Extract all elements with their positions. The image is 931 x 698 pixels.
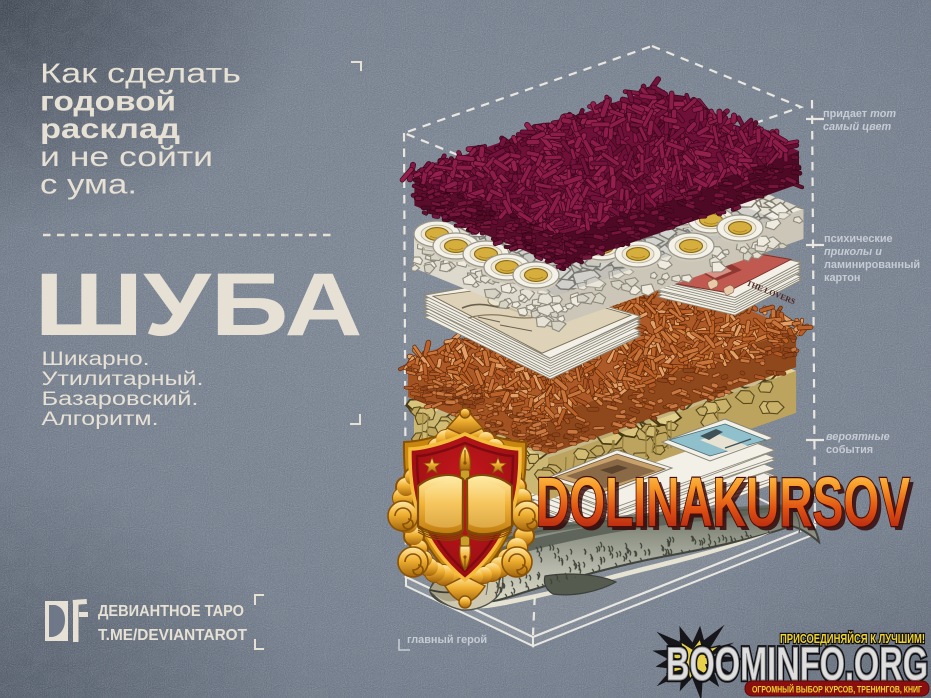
svg-text:расклад: расклад — [40, 113, 180, 144]
svg-text:Утилитарный.: Утилитарный. — [42, 369, 204, 390]
svg-text:с ума.: с ума. — [40, 169, 137, 200]
svg-text:ОГРОМНЫЙ ВЫБОР КУРСОВ, ТРЕНИНГ: ОГРОМНЫЙ ВЫБОР КУРСОВ, ТРЕНИНГОВ, КНИГ — [752, 684, 922, 696]
svg-text:психические: психические — [824, 233, 893, 245]
svg-text:главный герой: главный герой — [407, 634, 487, 646]
svg-text:события: события — [826, 444, 873, 456]
svg-text:ПРИСОЕДИНЯЙСЯ К ЛУЧШИМ!: ПРИСОЕДИНЯЙСЯ К ЛУЧШИМ! — [780, 631, 925, 646]
svg-text:самый цвет: самый цвет — [823, 121, 892, 133]
svg-text:ДЕВИАНТНОЕ ТАРО: ДЕВИАНТНОЕ ТАРО — [98, 603, 244, 620]
svg-text:Как сделать: Как сделать — [40, 58, 241, 89]
svg-text:Шикарно.: Шикарно. — [42, 349, 150, 370]
svg-text:приколы и: приколы и — [824, 246, 882, 258]
svg-text:вероятные: вероятные — [826, 431, 890, 443]
svg-text:DOLINAKURSOV: DOLINAKURSOV — [536, 463, 910, 541]
svg-text:ШУБА: ШУБА — [35, 254, 363, 354]
svg-text:придает тот: придает тот — [823, 108, 896, 120]
svg-text:ламинированный: ламинированный — [824, 259, 920, 271]
svg-text:и не сойти: и не сойти — [40, 141, 213, 172]
svg-text:Базаровский.: Базаровский. — [42, 389, 199, 410]
svg-text:T.ME/DEVIANTAROT: T.ME/DEVIANTAROT — [98, 627, 248, 644]
svg-text:картон: картон — [824, 272, 860, 284]
svg-text:годовой: годовой — [40, 85, 176, 116]
svg-text:Алгоритм.: Алгоритм. — [42, 409, 159, 430]
